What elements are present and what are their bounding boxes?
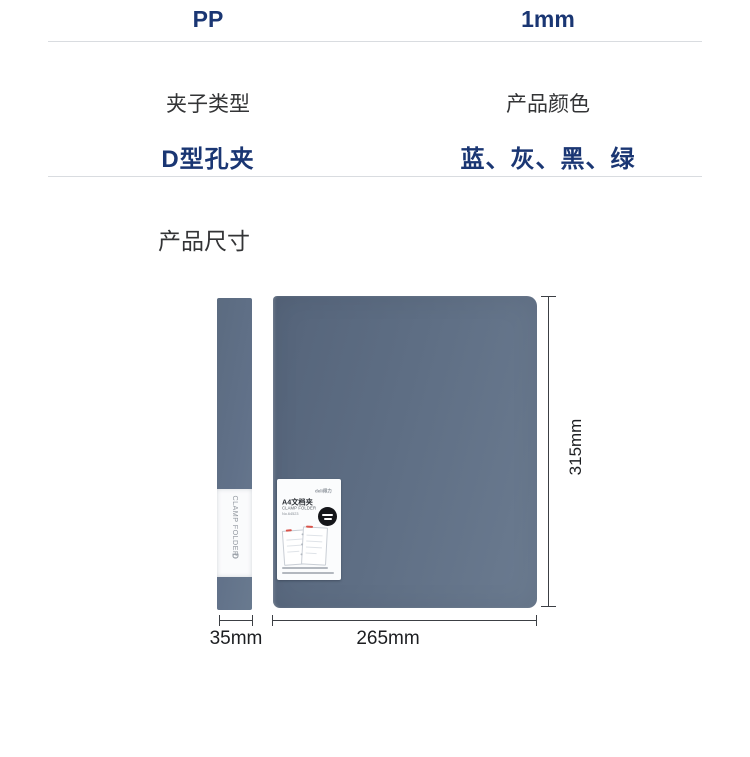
spec-thickness-value: 1mm (398, 6, 698, 33)
label-black-badge (318, 507, 337, 526)
label-bullet-text-2 (282, 572, 334, 574)
spine-brand-mark: D (230, 553, 239, 559)
spec-color-value: 蓝、灰、黑、绿 (398, 139, 698, 174)
divider-bottom (48, 176, 702, 177)
product-detail-page: PP 1mm 夹子类型 产品颜色 D型孔夹 蓝、灰、黑、绿 产品尺寸 CLAMP… (0, 0, 750, 757)
dimension-height-value: 315mm (566, 419, 586, 476)
dimension-spine-left-tick (219, 615, 220, 626)
dimension-line-spine-width (219, 620, 253, 621)
dimension-line-height (548, 296, 549, 607)
cover-product-label: deli得力 A4文档夹 CLAMP FOLDER No.64523 (277, 479, 341, 580)
spec-material-value: PP (58, 6, 358, 33)
dimension-width-value: 265mm (338, 628, 438, 650)
illustration-right-page (301, 526, 328, 565)
folder-line-illustration (281, 526, 329, 568)
dimension-spine-right-tick (252, 615, 253, 626)
spine-label-text: CLAMP FOLDER (231, 495, 239, 556)
spec-color-label: 产品颜色 (398, 88, 698, 118)
brand-logo: deli得力 (315, 487, 332, 494)
label-model-number: No.64523 (282, 512, 298, 516)
spec-clamp-type-label: 夹子类型 (58, 88, 358, 118)
dimension-height-top-tick (541, 296, 556, 297)
dimension-spine-width-value: 35mm (186, 628, 286, 650)
spec-clamp-type-value: D型孔夹 (58, 139, 358, 174)
folder-spine-label: CLAMP FOLDER D (217, 489, 252, 577)
section-title-dimensions: 产品尺寸 (158, 222, 250, 256)
dimension-width-left-tick (272, 615, 273, 626)
dimension-height-bottom-tick (541, 606, 556, 607)
divider-top (48, 41, 702, 42)
label-bullet-text-1 (282, 567, 328, 569)
dimension-line-width (272, 620, 537, 621)
dimension-width-right-tick (536, 615, 537, 626)
label-subtitle: CLAMP FOLDER (282, 506, 316, 511)
